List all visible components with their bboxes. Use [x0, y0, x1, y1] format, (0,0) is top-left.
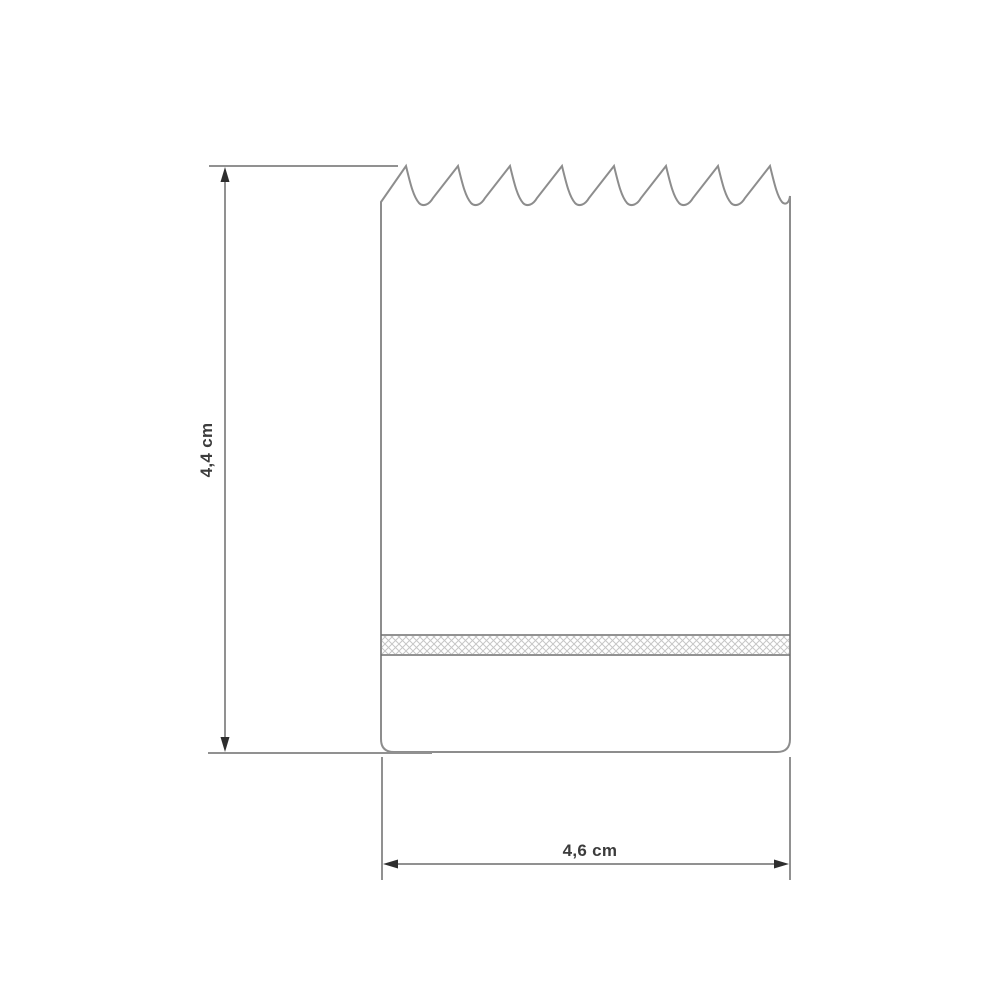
height-arrowhead-down-icon — [221, 737, 230, 752]
height-dimension-label: 4,4 cm — [197, 423, 216, 478]
height-arrowhead-up-icon — [221, 167, 230, 182]
width-arrowhead-left-icon — [383, 860, 398, 869]
width-arrowhead-right-icon — [774, 860, 789, 869]
width-dimension-label: 4,6 cm — [563, 841, 618, 860]
knurled-band-hatch-fill — [382, 636, 789, 654]
product-dimension-diagram: 4,4 cm 4,6 cm — [0, 0, 1000, 1000]
technical-drawing-svg: 4,4 cm 4,6 cm — [0, 0, 1000, 1000]
hole-saw-body-outline — [381, 166, 790, 752]
knurled-band — [381, 635, 790, 655]
width-dimension: 4,6 cm — [382, 757, 790, 880]
